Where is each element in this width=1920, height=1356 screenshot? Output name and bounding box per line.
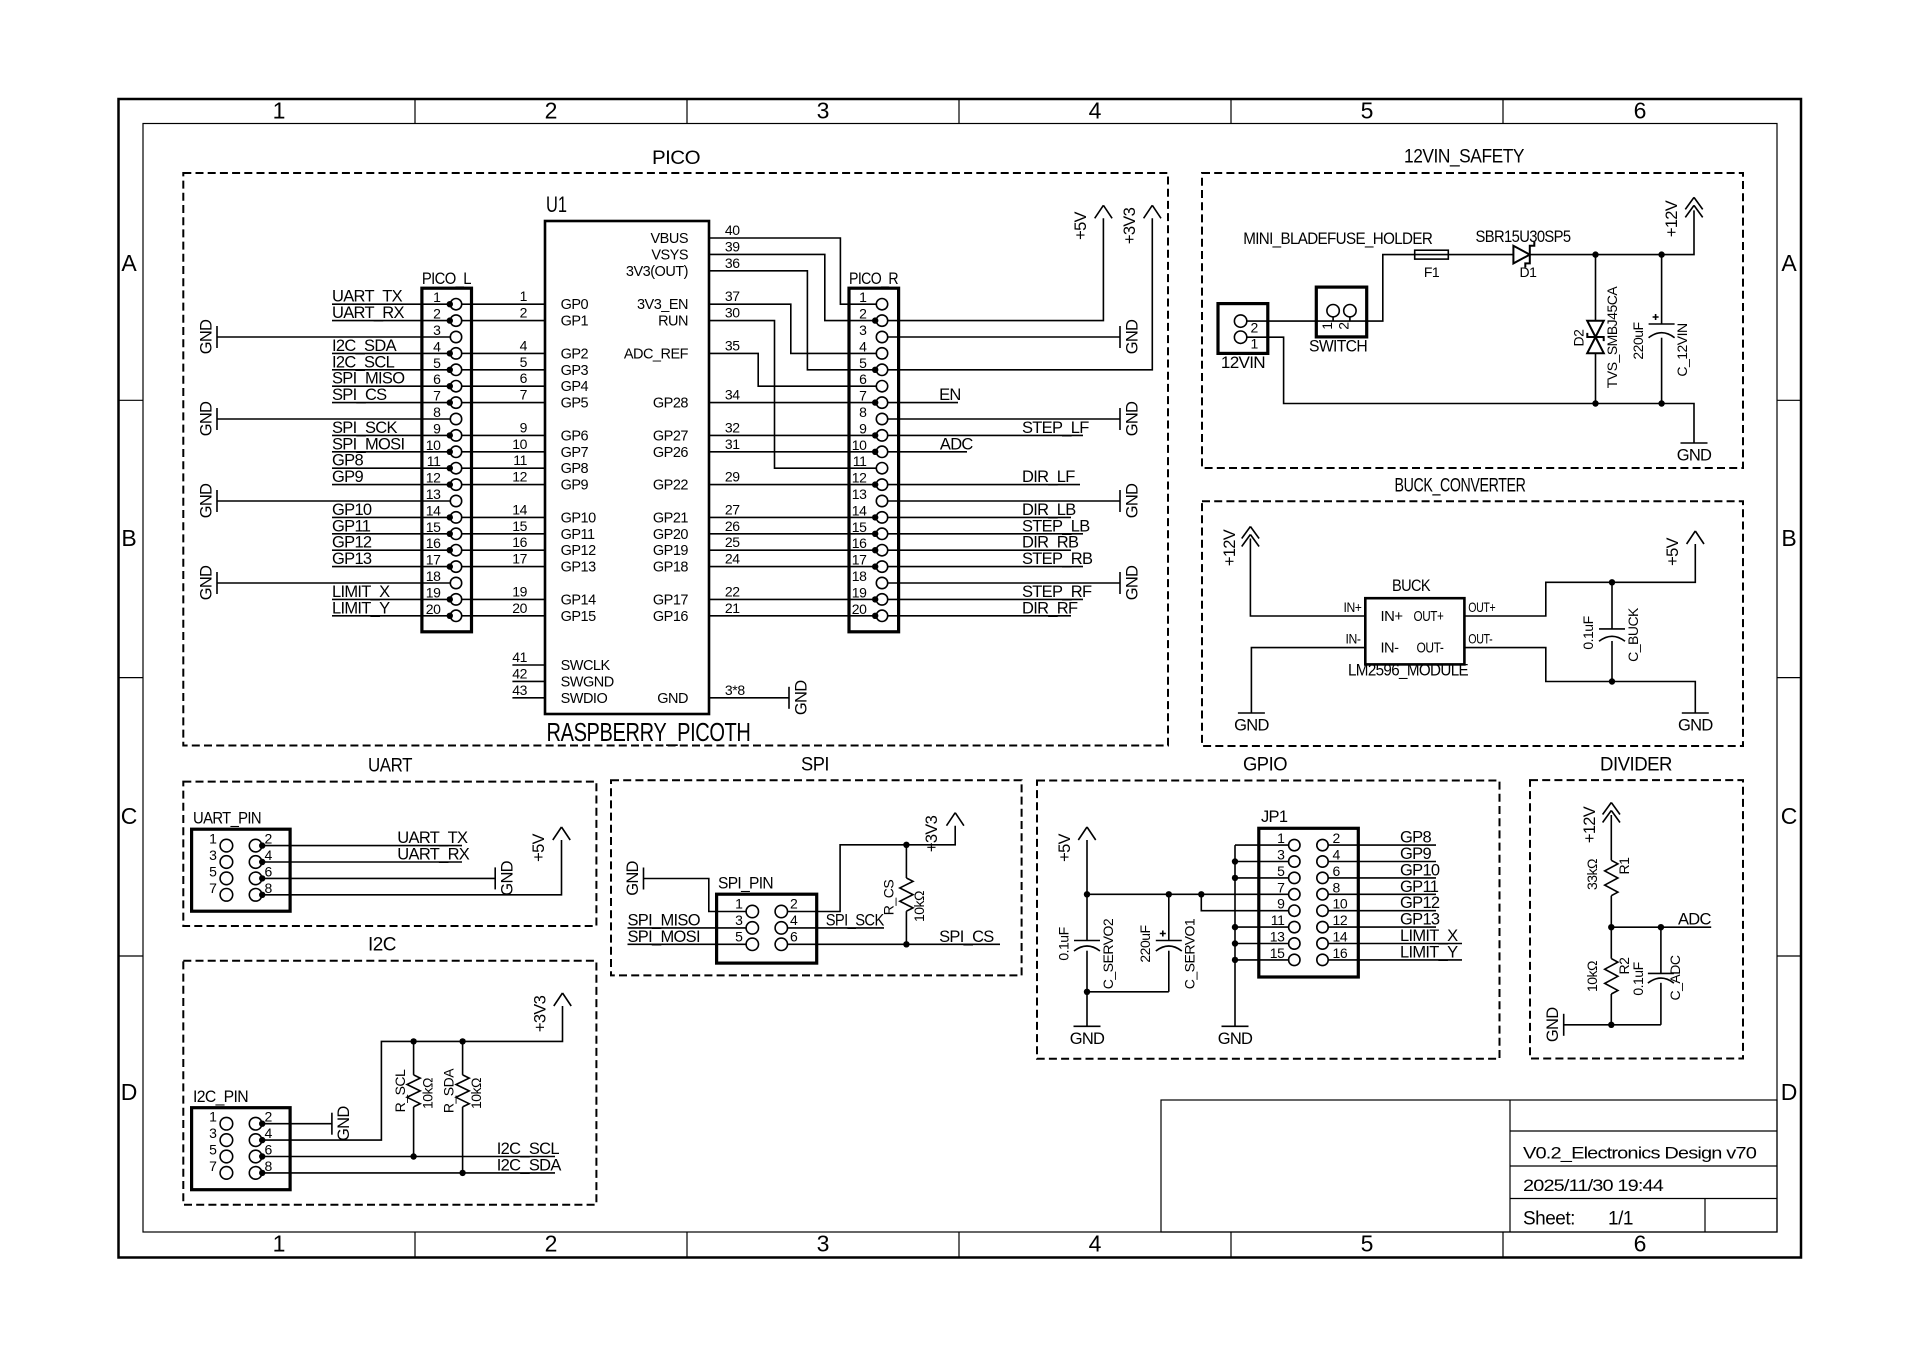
svg-text:15: 15 [426, 519, 441, 535]
svg-text:14: 14 [852, 502, 867, 518]
svg-text:6: 6 [1333, 863, 1341, 879]
svg-text:+3V3: +3V3 [1121, 207, 1139, 244]
svg-text:GP19: GP19 [653, 543, 689, 559]
svg-text:R1: R1 [1616, 857, 1632, 875]
svg-text:24: 24 [725, 551, 740, 567]
svg-text:TVS_SMBJ45CA: TVS_SMBJ45CA [1604, 286, 1620, 389]
svg-text:6: 6 [790, 928, 798, 944]
svg-text:17: 17 [426, 552, 441, 568]
svg-text:C_SERVO2: C_SERVO2 [1100, 918, 1116, 989]
svg-text:GP26: GP26 [653, 445, 689, 461]
svg-text:11: 11 [853, 453, 867, 469]
svg-text:D: D [1781, 1079, 1798, 1105]
svg-text:19: 19 [512, 583, 527, 599]
svg-text:1: 1 [1277, 830, 1285, 846]
svg-text:15: 15 [1270, 945, 1285, 961]
svg-text:LIMIT_X: LIMIT_X [1400, 927, 1458, 945]
svg-text:I2C_SDA: I2C_SDA [332, 337, 397, 355]
svg-text:+5V: +5V [530, 833, 548, 861]
svg-text:GP14: GP14 [561, 592, 597, 608]
svg-text:B: B [121, 525, 136, 551]
svg-text:GP11: GP11 [561, 527, 595, 543]
svg-text:43: 43 [512, 682, 527, 698]
svg-text:10kΩ: 10kΩ [468, 1078, 484, 1109]
svg-text:3V3_EN: 3V3_EN [637, 297, 688, 313]
svg-text:F1: F1 [1424, 264, 1440, 280]
svg-text:40: 40 [725, 222, 740, 238]
svg-text:SPI_SCK: SPI_SCK [332, 419, 397, 437]
svg-text:2025/11/30 19:44: 2025/11/30 19:44 [1523, 1177, 1664, 1195]
svg-text:SWDIO: SWDIO [561, 691, 608, 707]
svg-text:5: 5 [433, 355, 441, 371]
svg-text:C_BUCK: C_BUCK [1625, 607, 1641, 662]
svg-text:4: 4 [433, 338, 441, 354]
svg-text:LIMIT_X: LIMIT_X [332, 583, 390, 601]
svg-text:4: 4 [265, 1125, 273, 1141]
svg-text:ADC: ADC [1678, 911, 1712, 929]
svg-text:U1: U1 [546, 192, 567, 217]
svg-text:GND: GND [1678, 717, 1713, 735]
svg-text:6: 6 [433, 371, 441, 387]
svg-text:4: 4 [520, 337, 528, 353]
svg-text:8: 8 [859, 404, 867, 420]
svg-text:OUT-: OUT- [1417, 641, 1445, 657]
svg-text:UART_RX: UART_RX [332, 304, 405, 322]
svg-text:7: 7 [1277, 879, 1285, 895]
svg-text:0.1uF: 0.1uF [1055, 927, 1071, 960]
svg-text:D1: D1 [1520, 264, 1538, 280]
svg-text:12: 12 [852, 470, 867, 486]
svg-text:C: C [1781, 803, 1798, 829]
svg-text:25: 25 [725, 534, 740, 550]
svg-text:GP13: GP13 [1400, 911, 1440, 929]
svg-text:14: 14 [512, 501, 527, 517]
svg-text:2: 2 [545, 98, 558, 124]
svg-text:UART_PIN: UART_PIN [193, 810, 261, 828]
svg-text:GND: GND [792, 680, 810, 715]
svg-text:6: 6 [1634, 1231, 1647, 1257]
svg-text:14: 14 [1333, 929, 1348, 945]
svg-text:GP21: GP21 [653, 510, 689, 526]
svg-text:I2C_SCL: I2C_SCL [332, 353, 395, 371]
svg-text:GP12: GP12 [1400, 894, 1440, 912]
svg-text:1: 1 [209, 1109, 217, 1125]
svg-text:DIR_RF: DIR_RF [1022, 599, 1078, 617]
svg-text:GP10: GP10 [1400, 861, 1440, 879]
svg-text:16: 16 [512, 534, 527, 550]
svg-text:PICO_L: PICO_L [422, 270, 471, 288]
svg-text:C: C [121, 803, 138, 829]
svg-text:4: 4 [859, 338, 867, 354]
svg-text:7: 7 [859, 388, 867, 404]
svg-text:GP22: GP22 [653, 478, 689, 494]
svg-text:7: 7 [520, 387, 528, 403]
svg-text:8: 8 [265, 880, 273, 896]
svg-text:LM2596_MODULE: LM2596_MODULE [1348, 662, 1469, 680]
svg-text:16: 16 [426, 535, 441, 551]
svg-text:SPI_CS: SPI_CS [939, 928, 994, 946]
svg-text:20: 20 [852, 601, 867, 617]
svg-text:1: 1 [433, 289, 441, 305]
svg-text:5: 5 [735, 928, 743, 944]
svg-text:I2C_PIN: I2C_PIN [193, 1088, 248, 1106]
svg-text:10kΩ: 10kΩ [419, 1078, 435, 1109]
svg-text:6: 6 [265, 863, 273, 879]
svg-text:PICO_R: PICO_R [849, 270, 899, 288]
svg-text:11: 11 [513, 452, 527, 468]
svg-text:3: 3 [817, 1231, 830, 1257]
svg-text:0.1uF: 0.1uF [1630, 962, 1646, 995]
svg-text:19: 19 [426, 584, 441, 600]
svg-text:13: 13 [426, 486, 441, 502]
svg-text:3V3(OUT): 3V3(OUT) [626, 264, 688, 280]
svg-text:1: 1 [273, 98, 286, 124]
svg-text:29: 29 [725, 469, 740, 485]
svg-text:13: 13 [1270, 929, 1285, 945]
svg-text:GP10: GP10 [561, 510, 597, 526]
svg-text:10: 10 [1333, 896, 1348, 912]
svg-text:5: 5 [209, 1142, 217, 1158]
svg-text:STEP_RF: STEP_RF [1022, 583, 1092, 601]
svg-text:12: 12 [512, 469, 527, 485]
svg-text:+5V: +5V [1056, 833, 1074, 861]
svg-text:SPI_CS: SPI_CS [332, 386, 387, 404]
svg-text:OUT+: OUT+ [1468, 599, 1495, 615]
svg-text:GP17: GP17 [653, 592, 689, 608]
svg-text:UART_RX: UART_RX [397, 846, 470, 864]
svg-text:9: 9 [859, 420, 867, 436]
svg-text:20: 20 [426, 601, 441, 617]
svg-text:+3V3: +3V3 [923, 815, 941, 852]
svg-text:31: 31 [725, 436, 740, 452]
svg-text:3: 3 [209, 1125, 217, 1141]
svg-text:UART_TX: UART_TX [332, 288, 403, 306]
svg-text:RUN: RUN [658, 314, 688, 330]
svg-text:PICO: PICO [652, 148, 700, 169]
svg-text:3: 3 [209, 847, 217, 863]
svg-text:2: 2 [520, 305, 528, 321]
svg-text:LIMIT_Y: LIMIT_Y [332, 599, 390, 617]
svg-text:6: 6 [859, 371, 867, 387]
svg-text:BUCK_CONVERTER: BUCK_CONVERTER [1395, 476, 1526, 497]
svg-text:6: 6 [265, 1142, 273, 1158]
svg-text:2: 2 [1333, 830, 1341, 846]
svg-text:GND: GND [1677, 447, 1712, 465]
svg-text:GP9: GP9 [1400, 845, 1431, 863]
svg-text:10kΩ: 10kΩ [911, 891, 927, 922]
svg-text:41: 41 [512, 649, 527, 665]
svg-text:3: 3 [817, 98, 830, 124]
svg-text:STEP_RB: STEP_RB [1022, 550, 1093, 568]
svg-text:JP1: JP1 [1261, 808, 1288, 826]
svg-text:37: 37 [725, 288, 740, 304]
svg-text:11: 11 [427, 453, 441, 469]
svg-text:11: 11 [1271, 912, 1285, 928]
svg-text:18: 18 [426, 568, 441, 584]
svg-text:GND: GND [498, 860, 516, 895]
svg-text:R_SCL: R_SCL [392, 1069, 408, 1112]
svg-text:A: A [1781, 250, 1797, 276]
svg-text:ADC_REF: ADC_REF [624, 346, 689, 362]
svg-text:V0.2_Electronics Design v70: V0.2_Electronics Design v70 [1523, 1145, 1757, 1163]
svg-text:GP11: GP11 [332, 517, 371, 535]
svg-text:I2C_SDA: I2C_SDA [497, 1156, 562, 1174]
svg-text:GND: GND [657, 691, 688, 707]
svg-text:SBR15U30SP5: SBR15U30SP5 [1476, 228, 1571, 246]
svg-text:GND: GND [197, 483, 215, 518]
svg-text:VSYS: VSYS [651, 247, 688, 263]
svg-text:DIVIDER: DIVIDER [1600, 755, 1672, 776]
svg-text:20: 20 [512, 600, 527, 616]
svg-text:30: 30 [725, 305, 740, 321]
svg-text:4: 4 [1089, 1231, 1102, 1257]
svg-text:5: 5 [520, 354, 528, 370]
svg-text:5: 5 [859, 355, 867, 371]
svg-text:2: 2 [265, 1109, 273, 1125]
svg-text:32: 32 [725, 419, 740, 435]
svg-text:27: 27 [725, 501, 740, 517]
svg-text:16: 16 [852, 535, 867, 551]
svg-text:SWGND: SWGND [561, 674, 614, 690]
svg-text:39: 39 [725, 238, 740, 254]
svg-text:8: 8 [1333, 879, 1341, 895]
svg-text:13: 13 [852, 486, 867, 502]
svg-text:2: 2 [265, 831, 273, 847]
svg-text:LIMIT_Y: LIMIT_Y [1400, 943, 1458, 961]
svg-text:GP1: GP1 [561, 314, 589, 330]
svg-text:GP18: GP18 [653, 560, 689, 576]
svg-text:220uF: 220uF [1137, 925, 1153, 962]
svg-text:DIR_LB: DIR_LB [1022, 501, 1076, 519]
svg-text:+5V: +5V [1664, 537, 1682, 565]
svg-text:4: 4 [1333, 847, 1341, 863]
svg-text:GP28: GP28 [653, 396, 689, 412]
svg-text:10kΩ: 10kΩ [1584, 961, 1600, 992]
svg-text:8: 8 [433, 404, 441, 420]
svg-text:2: 2 [433, 306, 441, 322]
svg-text:GND: GND [1070, 1030, 1105, 1048]
svg-text:36: 36 [725, 255, 740, 271]
svg-text:SPI_PIN: SPI_PIN [718, 875, 773, 893]
svg-text:GP3: GP3 [561, 363, 589, 379]
svg-text:SWITCH: SWITCH [1309, 338, 1367, 356]
svg-text:STEP_LB: STEP_LB [1022, 517, 1090, 535]
svg-text:17: 17 [852, 552, 867, 568]
svg-text:D: D [121, 1079, 138, 1105]
svg-text:+5V: +5V [1072, 211, 1090, 239]
svg-text:10: 10 [852, 437, 867, 453]
svg-text:GP12: GP12 [561, 543, 597, 559]
svg-text:1: 1 [1319, 322, 1335, 330]
svg-text:GND: GND [1218, 1030, 1253, 1048]
svg-text:GND: GND [197, 319, 215, 354]
svg-text:1: 1 [209, 831, 217, 847]
svg-text:GND: GND [1123, 401, 1141, 436]
svg-text:9: 9 [1277, 896, 1285, 912]
svg-text:EN: EN [939, 386, 961, 404]
svg-text:10: 10 [512, 436, 527, 452]
svg-text:GP13: GP13 [561, 560, 597, 576]
svg-text:C_SERVO1: C_SERVO1 [1181, 918, 1197, 989]
svg-text:OUT-: OUT- [1468, 631, 1493, 647]
svg-text:42: 42 [512, 665, 527, 681]
svg-text:4: 4 [1089, 98, 1102, 124]
svg-text:+3V3: +3V3 [531, 995, 549, 1032]
svg-text:C_12VIN: C_12VIN [1674, 323, 1690, 376]
svg-text:DIR_LF: DIR_LF [1022, 468, 1075, 486]
svg-text:OUT+: OUT+ [1414, 609, 1444, 625]
svg-text:GP10: GP10 [332, 501, 372, 519]
svg-text:I2C_SCL: I2C_SCL [497, 1140, 560, 1158]
svg-text:GP27: GP27 [653, 428, 689, 444]
svg-text:15: 15 [852, 519, 867, 535]
svg-text:34: 34 [725, 387, 740, 403]
svg-text:5: 5 [1361, 98, 1374, 124]
svg-text:22: 22 [725, 583, 740, 599]
svg-text:GND: GND [197, 565, 215, 600]
svg-text:SPI_MOSI: SPI_MOSI [332, 435, 404, 453]
svg-text:8: 8 [265, 1158, 273, 1174]
svg-text:GND: GND [1544, 1007, 1562, 1042]
svg-text:2: 2 [859, 306, 867, 322]
svg-text:GP20: GP20 [653, 527, 689, 543]
svg-text:GND: GND [1123, 565, 1141, 600]
svg-text:GP12: GP12 [332, 534, 372, 552]
svg-text:19: 19 [852, 584, 867, 600]
svg-text:1: 1 [520, 288, 528, 304]
svg-text:VBUS: VBUS [651, 231, 689, 247]
svg-text:+12V: +12V [1581, 806, 1599, 843]
svg-text:12: 12 [1333, 912, 1348, 928]
svg-text:1/1: 1/1 [1608, 1209, 1633, 1230]
svg-text:RASPBERRY_PICOTH: RASPBERRY_PICOTH [547, 717, 751, 747]
svg-text:GP9: GP9 [561, 478, 589, 494]
svg-text:GND: GND [1123, 483, 1141, 518]
svg-text:18: 18 [852, 568, 867, 584]
svg-text:6: 6 [520, 370, 528, 386]
svg-text:GP13: GP13 [332, 550, 372, 568]
svg-text:5: 5 [1361, 1231, 1374, 1257]
svg-text:12VIN: 12VIN [1221, 354, 1265, 372]
svg-text:7: 7 [209, 880, 217, 896]
svg-text:GPIO: GPIO [1243, 755, 1287, 776]
svg-text:+12V: +12V [1663, 200, 1681, 237]
svg-text:DIR_RB: DIR_RB [1022, 534, 1079, 552]
svg-text:UART_TX: UART_TX [397, 829, 468, 847]
svg-text:SPI_MOSI: SPI_MOSI [628, 928, 700, 946]
svg-text:SPI_SCK: SPI_SCK [826, 911, 885, 929]
svg-text:15: 15 [512, 518, 527, 534]
svg-text:7: 7 [433, 388, 441, 404]
svg-text:33kΩ: 33kΩ [1584, 859, 1600, 890]
svg-text:+12V: +12V [1221, 529, 1239, 566]
svg-text:5: 5 [209, 863, 217, 879]
svg-text:D2: D2 [1570, 329, 1586, 347]
svg-text:GND: GND [1234, 717, 1269, 735]
svg-text:IN-: IN- [1381, 641, 1400, 657]
svg-text:220uF: 220uF [1630, 322, 1646, 359]
svg-text:Sheet:: Sheet: [1523, 1209, 1575, 1230]
svg-text:SPI_MISO: SPI_MISO [332, 370, 405, 388]
svg-text:GP0: GP0 [561, 297, 589, 313]
svg-text:SPI_MISO: SPI_MISO [628, 911, 701, 929]
svg-text:10: 10 [426, 437, 441, 453]
svg-text:GP2: GP2 [561, 346, 589, 362]
svg-text:2: 2 [1336, 322, 1352, 330]
svg-text:GND: GND [624, 860, 642, 895]
svg-text:C_ADC: C_ADC [1667, 955, 1683, 1000]
svg-text:A: A [121, 250, 137, 276]
svg-text:GP8: GP8 [561, 461, 589, 477]
svg-text:STEP_LF: STEP_LF [1022, 419, 1089, 437]
svg-text:GND: GND [335, 1106, 353, 1141]
svg-text:9: 9 [520, 419, 528, 435]
svg-text:14: 14 [426, 502, 441, 518]
svg-text:GP4: GP4 [561, 379, 589, 395]
svg-text:UART: UART [368, 756, 413, 777]
svg-text:9: 9 [433, 420, 441, 436]
svg-text:3*8: 3*8 [725, 682, 745, 698]
svg-text:3: 3 [1277, 847, 1285, 863]
svg-text:IN-: IN- [1346, 631, 1362, 647]
svg-text:GP8: GP8 [1400, 829, 1431, 847]
svg-text:1: 1 [273, 1231, 286, 1257]
svg-text:IN+: IN+ [1381, 609, 1403, 625]
svg-text:GP11: GP11 [1400, 878, 1439, 896]
svg-text:ADC: ADC [940, 435, 974, 453]
svg-text:12VIN_SAFETY: 12VIN_SAFETY [1404, 147, 1525, 168]
svg-text:IN+: IN+ [1344, 599, 1362, 615]
svg-text:GP9: GP9 [332, 468, 363, 486]
svg-text:3: 3 [735, 912, 743, 928]
svg-text:3: 3 [859, 322, 867, 338]
svg-text:GND: GND [197, 401, 215, 436]
svg-text:1: 1 [735, 896, 743, 912]
svg-text:GP5: GP5 [561, 396, 589, 412]
svg-text:2: 2 [790, 896, 798, 912]
svg-text:0.1uF: 0.1uF [1580, 616, 1596, 649]
svg-text:GP8: GP8 [332, 452, 363, 470]
svg-text:4: 4 [265, 847, 273, 863]
svg-text:GP15: GP15 [561, 609, 597, 625]
svg-text:GP6: GP6 [561, 428, 589, 444]
svg-text:BUCK: BUCK [1392, 577, 1431, 595]
svg-text:5: 5 [1277, 863, 1285, 879]
svg-text:SPI: SPI [801, 755, 829, 776]
svg-text:MINI_BLADEFUSE_HOLDER: MINI_BLADEFUSE_HOLDER [1243, 230, 1433, 248]
svg-text:7: 7 [209, 1158, 217, 1174]
svg-text:R_SDA: R_SDA [440, 1068, 456, 1113]
svg-text:3: 3 [433, 322, 441, 338]
svg-text:35: 35 [725, 337, 740, 353]
svg-text:12: 12 [426, 470, 441, 486]
svg-text:17: 17 [512, 551, 527, 567]
svg-text:I2C: I2C [368, 935, 396, 956]
svg-text:SWCLK: SWCLK [561, 658, 611, 674]
svg-text:6: 6 [1634, 98, 1647, 124]
svg-text:GP16: GP16 [653, 609, 689, 625]
svg-text:2: 2 [545, 1231, 558, 1257]
svg-text:1: 1 [859, 289, 867, 305]
svg-text:21: 21 [725, 600, 740, 616]
svg-text:R_CS: R_CS [880, 880, 896, 916]
svg-text:GP7: GP7 [561, 445, 589, 461]
svg-text:B: B [1781, 525, 1796, 551]
svg-text:GND: GND [1123, 319, 1141, 354]
svg-text:4: 4 [790, 912, 798, 928]
svg-text:16: 16 [1333, 945, 1348, 961]
svg-text:26: 26 [725, 518, 740, 534]
